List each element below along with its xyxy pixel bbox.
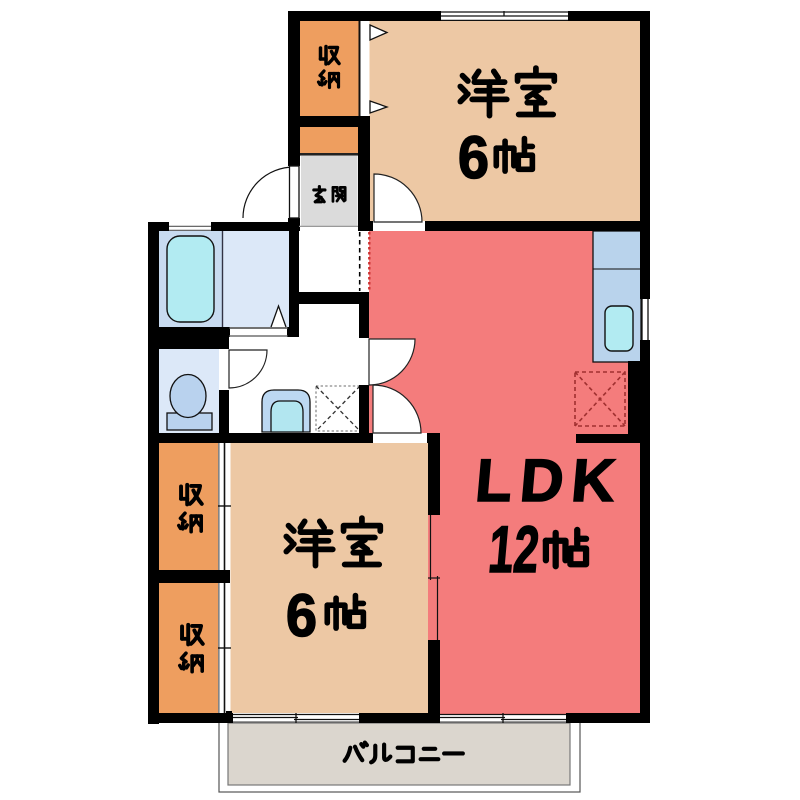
svg-text:LDK: LDK [473, 447, 626, 514]
svg-text:6: 6 [286, 582, 317, 649]
svg-text:6: 6 [458, 124, 489, 191]
svg-text:12: 12 [486, 513, 542, 587]
